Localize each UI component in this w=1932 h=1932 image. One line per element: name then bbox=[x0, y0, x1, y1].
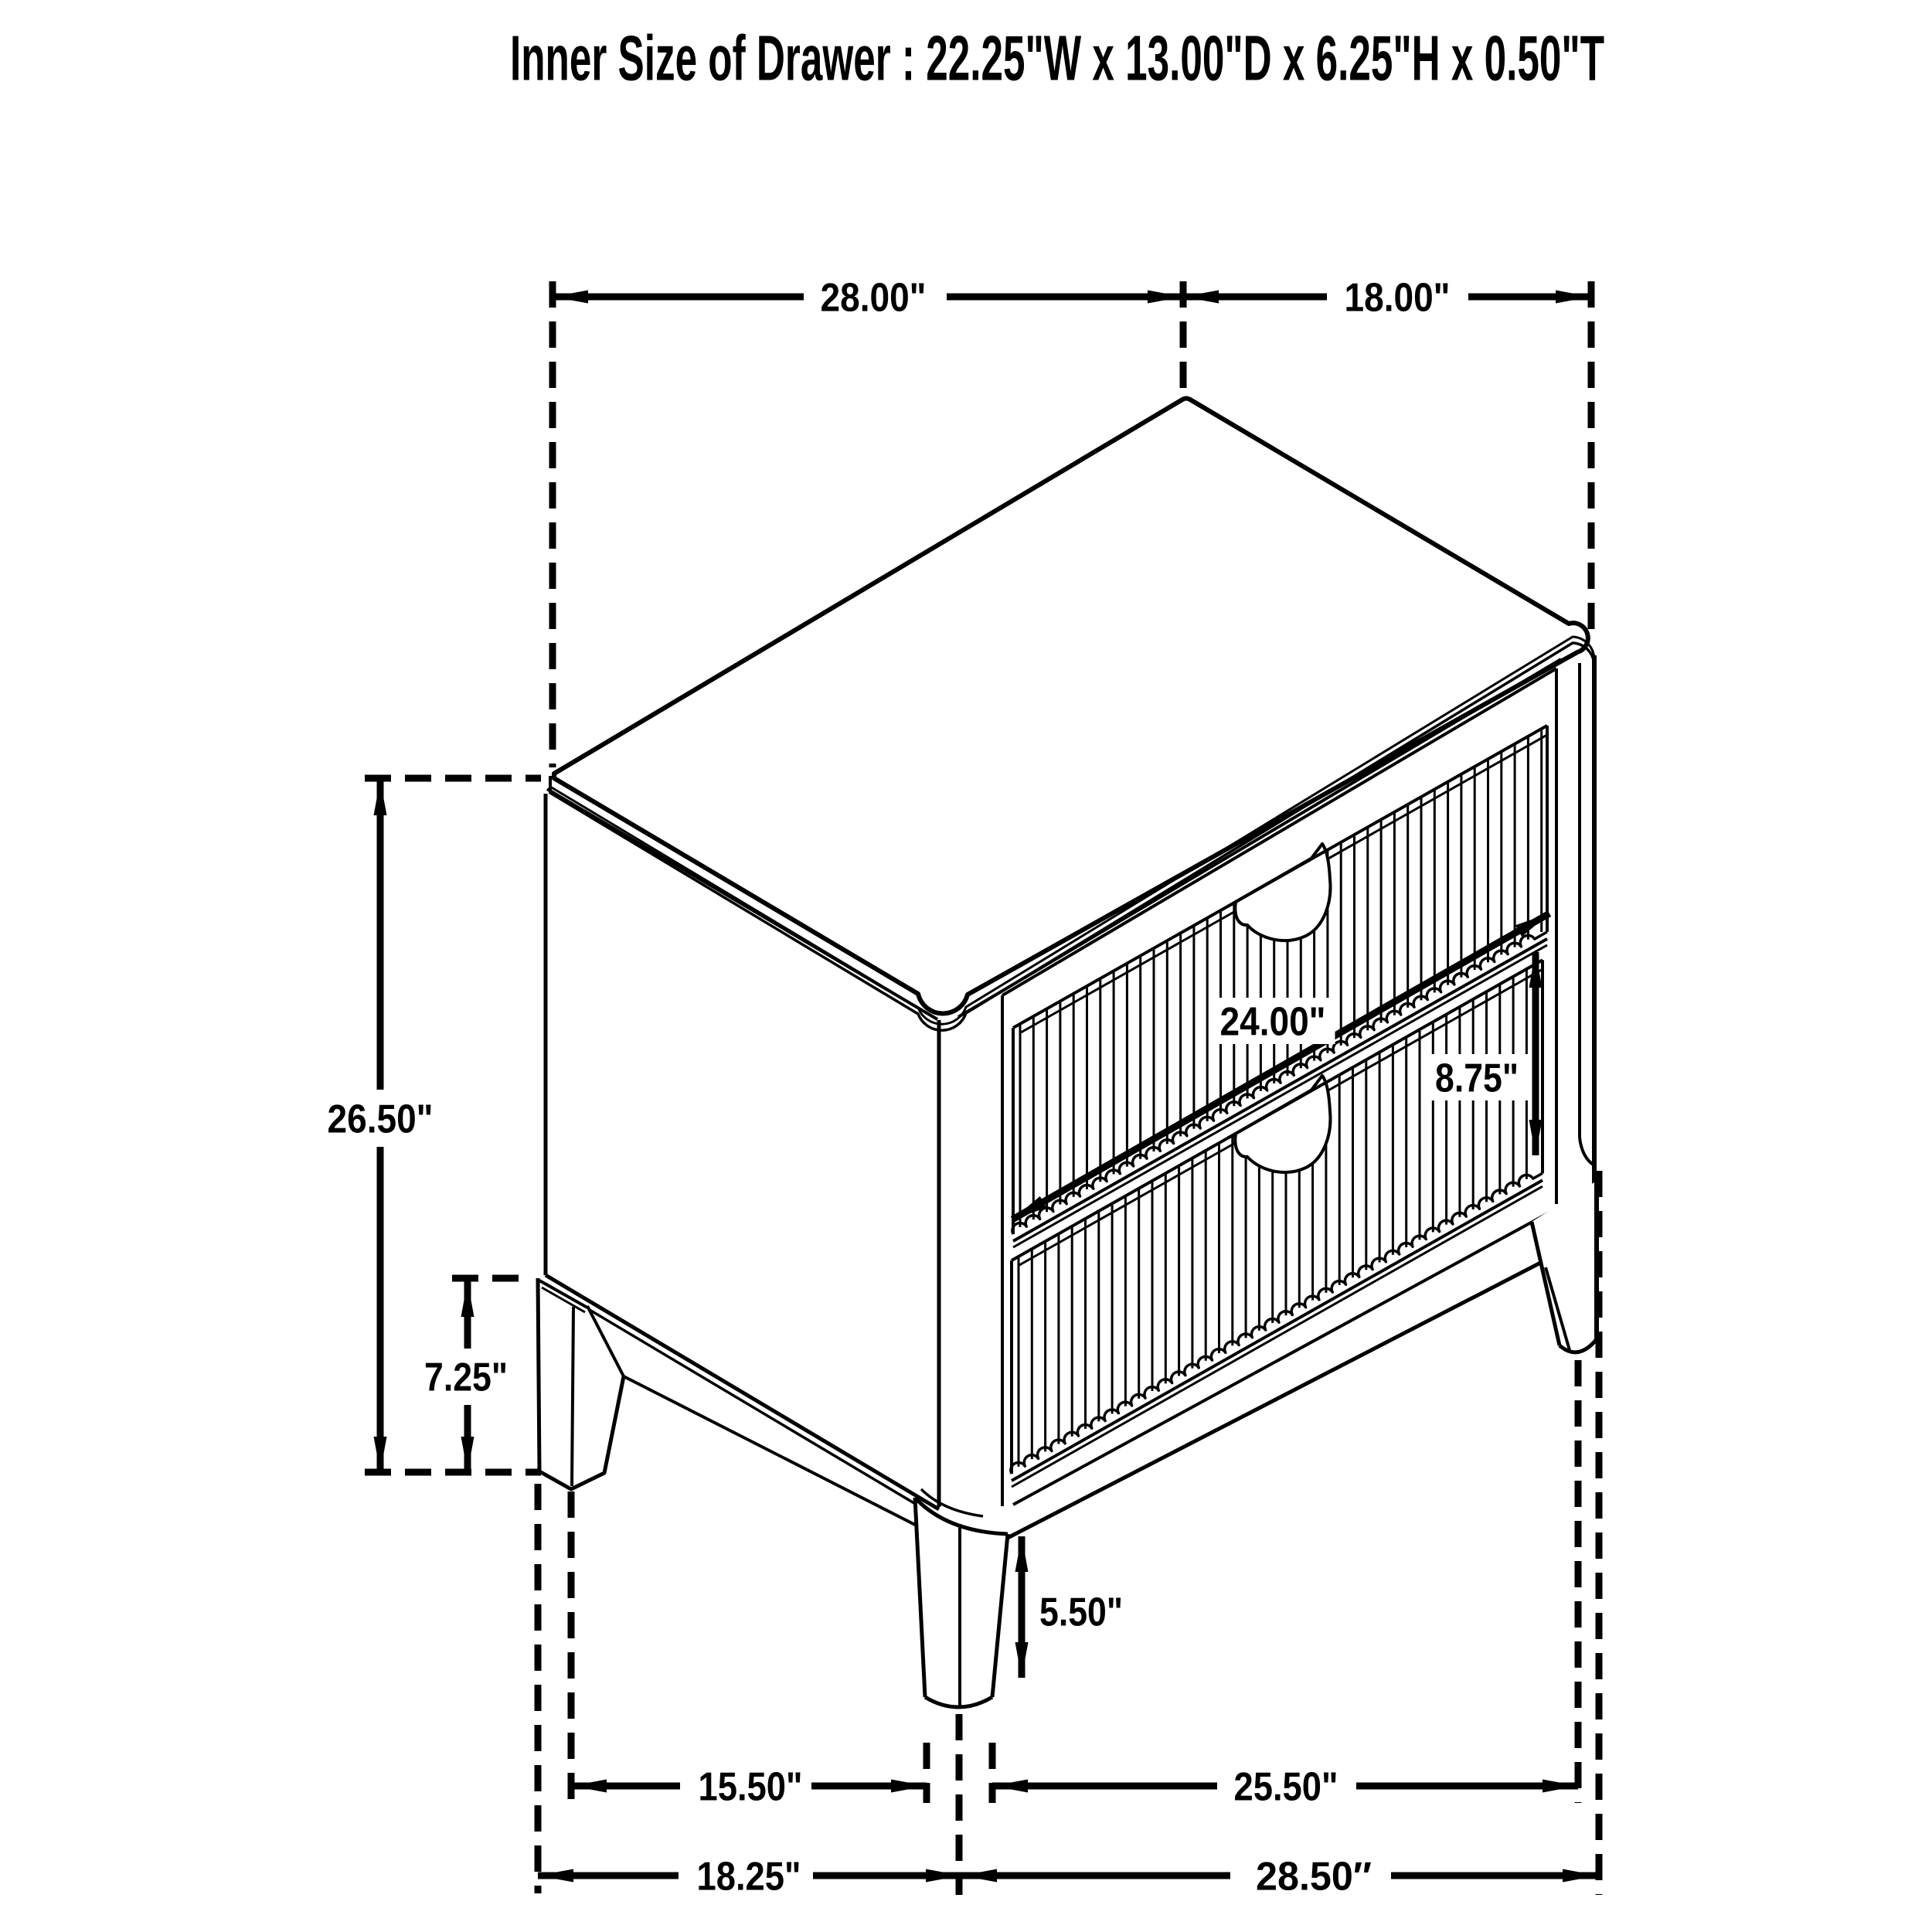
svg-text:28.50″: 28.50″ bbox=[1256, 1855, 1372, 1900]
svg-text:Inner Size of Drawer : 22.25"W: Inner Size of Drawer : 22.25"W x 13.00"D… bbox=[510, 22, 1604, 94]
svg-text:26.50": 26.50" bbox=[328, 1097, 434, 1142]
svg-text:8.75": 8.75" bbox=[1435, 1056, 1519, 1101]
svg-text:28.00": 28.00" bbox=[821, 276, 927, 321]
svg-text:24.00": 24.00" bbox=[1220, 1000, 1326, 1045]
svg-text:7.25": 7.25" bbox=[424, 1355, 508, 1400]
svg-text:18.25": 18.25" bbox=[697, 1855, 801, 1900]
svg-text:5.50": 5.50" bbox=[1039, 1590, 1123, 1635]
svg-text:15.50": 15.50" bbox=[699, 1765, 803, 1810]
svg-text:18.00": 18.00" bbox=[1345, 276, 1451, 321]
svg-text:25.50": 25.50" bbox=[1234, 1765, 1338, 1810]
